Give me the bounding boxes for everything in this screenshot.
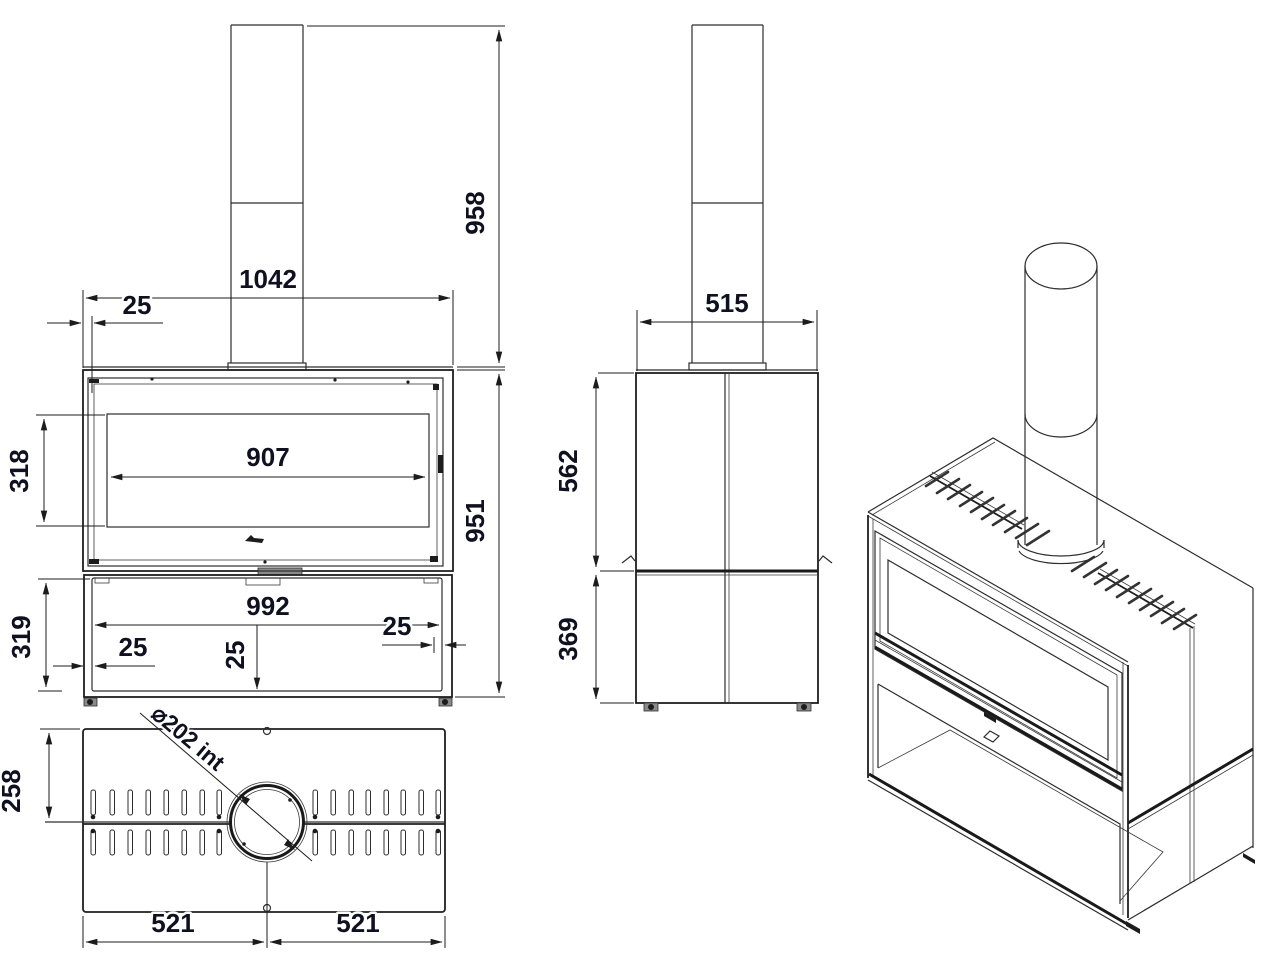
iso-top-face	[868, 438, 1253, 666]
dim-text-318: 318	[4, 449, 34, 492]
brand-logo	[245, 535, 264, 543]
dim-text-951: 951	[460, 499, 490, 542]
door-edge-handle	[438, 455, 443, 473]
isometric-view	[868, 243, 1255, 934]
dim-inset-bottom-right: 25	[382, 611, 466, 653]
dim-front-to-flue-center: 258	[0, 729, 80, 818]
dim-base-height: 369	[553, 575, 634, 703]
dim-overall-height: 951	[455, 370, 505, 697]
dim-text-521-right: 521	[336, 908, 379, 938]
drawing-svg: 958 1042 25 318 907 951	[0, 0, 1282, 965]
dim-text-369: 369	[553, 617, 583, 660]
dim-text-25-top: 25	[123, 290, 152, 320]
side-latch-right	[819, 556, 832, 563]
dim-text-958: 958	[460, 191, 490, 234]
dim-chimney-height: 958	[307, 26, 505, 367]
dim-text-25-c: 25	[220, 641, 250, 670]
iso-chimney	[1018, 243, 1104, 564]
dim-text-992: 992	[246, 591, 289, 621]
dim-text-258: 258	[0, 769, 26, 812]
dim-text-907: 907	[246, 442, 289, 472]
dim-inset-bottom-left: 25	[53, 632, 155, 666]
dim-compartment-height: 319	[6, 579, 90, 691]
side-latch-left	[622, 556, 635, 563]
dim-text-521-left: 521	[151, 908, 194, 938]
side-body	[622, 370, 832, 711]
front-chimney	[228, 25, 306, 370]
iso-foot-front	[1126, 921, 1140, 934]
dim-text-25-br: 25	[383, 611, 412, 641]
top-view: ⌀202 int 258 521 521	[0, 700, 445, 948]
dim-text-562: 562	[553, 449, 583, 492]
dim-text-202: ⌀202 int	[147, 700, 230, 776]
iso-foot-back	[1243, 853, 1255, 864]
dim-glass-height: 318	[4, 415, 105, 526]
dim-text-319: 319	[6, 615, 36, 658]
dim-text-1042: 1042	[239, 264, 297, 294]
dim-half-widths: 521 521	[83, 862, 445, 948]
dim-upper-height: 562	[553, 373, 634, 571]
dim-depth: 515	[637, 288, 817, 371]
technical-drawing-page: 958 1042 25 318 907 951	[0, 0, 1282, 965]
side-view: 515 562 369	[553, 25, 832, 711]
side-chimney	[689, 25, 766, 370]
dim-text-515: 515	[705, 288, 748, 318]
dim-glass-width: 907	[111, 442, 425, 477]
front-view: 958 1042 25 318 907 951	[4, 25, 505, 706]
iso-front-face	[868, 515, 1163, 930]
iso-latch	[984, 731, 999, 742]
dim-text-25-bl: 25	[119, 632, 148, 662]
dim-inset-bottom-center: 25	[220, 625, 257, 689]
